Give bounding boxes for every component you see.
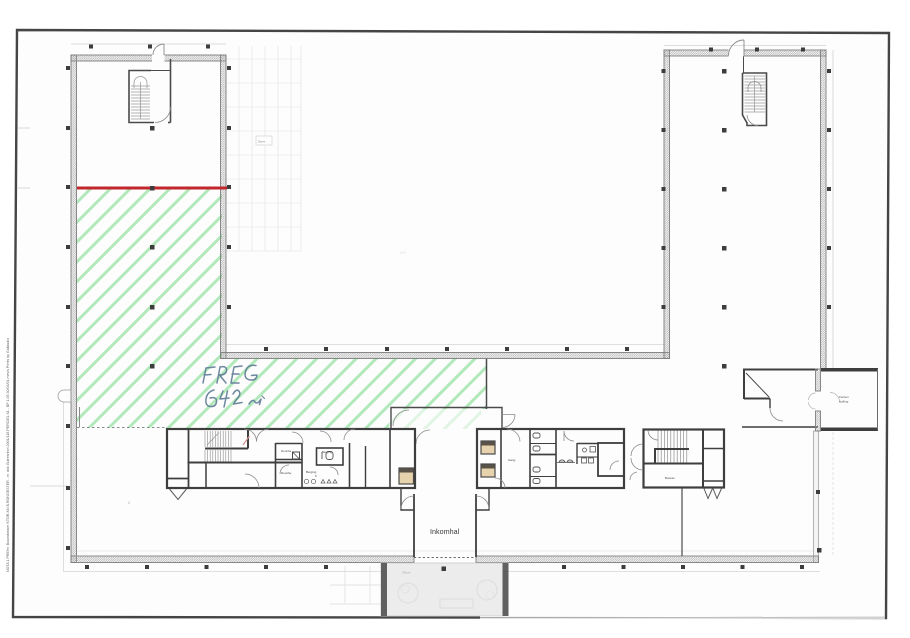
- svg-text:Berging: Berging: [322, 450, 333, 454]
- svg-text:Douche: Douche: [281, 449, 292, 453]
- svg-text:Serre: Serre: [258, 140, 266, 144]
- svg-text:NOTA 1 PREfm: Bouwdossier KTOR: NOTA 1 PREfm: Bouwdossier KTOR-KN B.RONG…: [6, 338, 10, 572]
- svg-text:Bureau: Bureau: [665, 476, 675, 480]
- svg-text:stalling: stalling: [839, 400, 849, 404]
- svg-text:am: am: [400, 250, 407, 255]
- svg-text:Fietsen: Fietsen: [839, 395, 849, 399]
- svg-text:Douche: Douche: [281, 471, 292, 475]
- svg-text:Gang: Gang: [508, 458, 516, 462]
- svg-text:Inkomhal: Inkomhal: [430, 527, 460, 536]
- svg-text:75mm: 75mm: [402, 571, 411, 575]
